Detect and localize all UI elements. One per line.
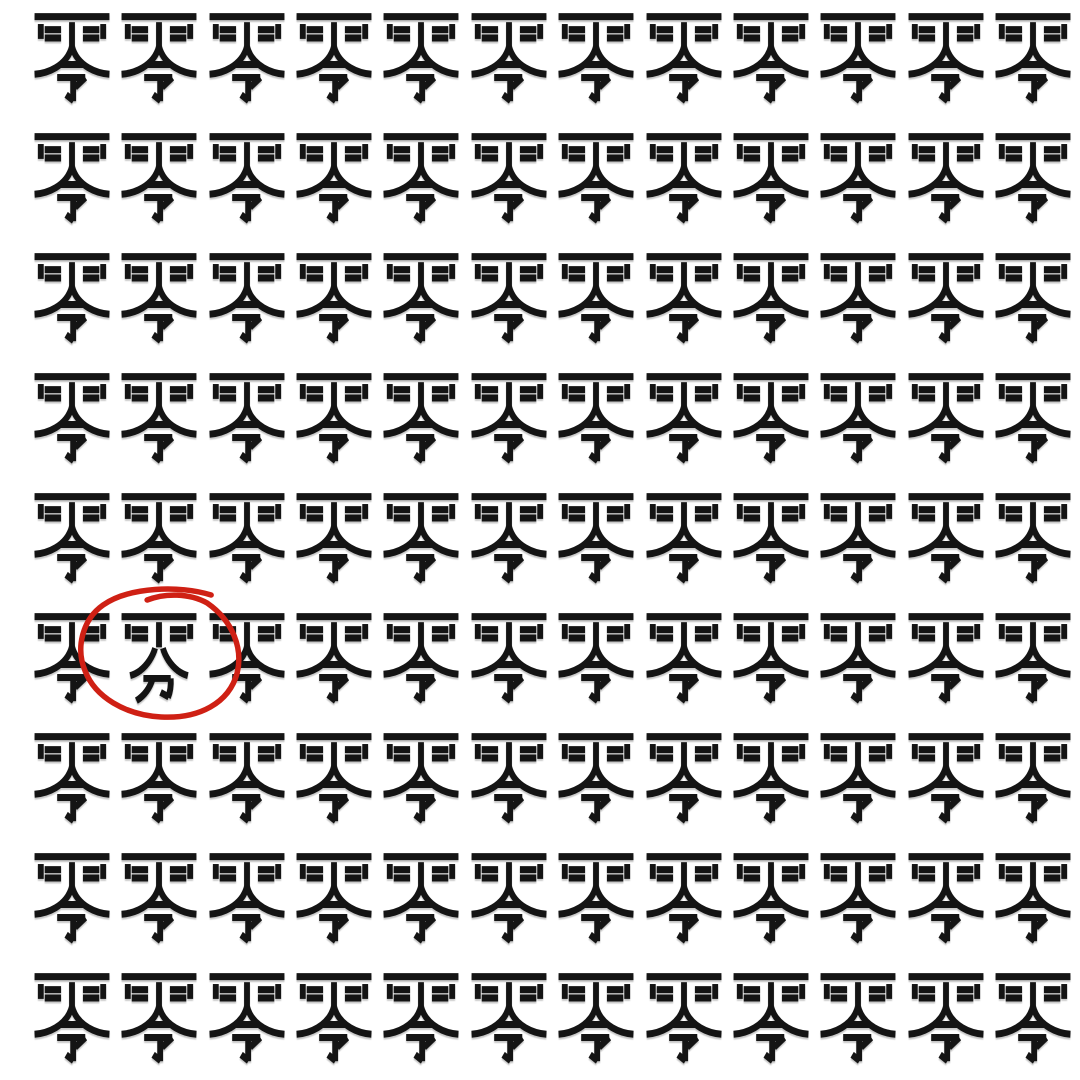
character-cell[interactable] bbox=[902, 0, 989, 117]
char-glyph bbox=[645, 851, 723, 944]
character-cell[interactable] bbox=[28, 357, 115, 477]
character-cell[interactable] bbox=[203, 237, 290, 357]
character-cell[interactable] bbox=[552, 957, 639, 1077]
char-glyph bbox=[645, 371, 723, 464]
character-cell[interactable] bbox=[902, 597, 989, 717]
character-cell[interactable] bbox=[552, 477, 639, 597]
character-cell[interactable] bbox=[290, 957, 377, 1077]
character-cell[interactable] bbox=[902, 957, 989, 1077]
char-glyph bbox=[33, 491, 111, 584]
char-glyph bbox=[382, 851, 460, 944]
char-glyph bbox=[819, 371, 897, 464]
character-cell[interactable] bbox=[290, 717, 377, 837]
character-cell[interactable] bbox=[552, 357, 639, 477]
char-glyph bbox=[645, 491, 723, 584]
character-cell[interactable] bbox=[28, 957, 115, 1077]
char-glyph bbox=[208, 971, 286, 1064]
char-glyph bbox=[295, 11, 373, 104]
character-cell[interactable] bbox=[378, 0, 465, 117]
char-glyph bbox=[732, 131, 810, 224]
character-cell[interactable] bbox=[378, 597, 465, 717]
character-cell[interactable] bbox=[28, 477, 115, 597]
char-glyph bbox=[819, 971, 897, 1064]
character-cell[interactable] bbox=[465, 717, 552, 837]
char-glyph bbox=[994, 251, 1072, 344]
char-glyph bbox=[994, 611, 1072, 704]
char-glyph bbox=[470, 11, 548, 104]
character-cell[interactable] bbox=[727, 477, 814, 597]
character-cell[interactable] bbox=[815, 357, 902, 477]
char-glyph bbox=[907, 611, 985, 704]
char-glyph bbox=[645, 131, 723, 224]
char-glyph bbox=[470, 971, 548, 1064]
char-glyph bbox=[907, 371, 985, 464]
char-glyph bbox=[295, 851, 373, 944]
char-glyph bbox=[732, 851, 810, 944]
char-glyph bbox=[732, 491, 810, 584]
char-glyph bbox=[994, 11, 1072, 104]
character-cell[interactable] bbox=[815, 717, 902, 837]
char-glyph bbox=[732, 611, 810, 704]
char-glyph bbox=[732, 971, 810, 1064]
character-cell[interactable] bbox=[465, 957, 552, 1077]
character-cell[interactable] bbox=[552, 117, 639, 237]
char-glyph bbox=[470, 491, 548, 584]
char-glyph bbox=[295, 131, 373, 224]
char-glyph bbox=[33, 851, 111, 944]
character-cell[interactable] bbox=[115, 357, 202, 477]
char-glyph bbox=[120, 851, 198, 944]
character-cell[interactable] bbox=[465, 597, 552, 717]
char-glyph bbox=[470, 731, 548, 824]
character-cell[interactable] bbox=[378, 717, 465, 837]
odd-char-glyph bbox=[120, 611, 198, 704]
character-cell[interactable] bbox=[203, 597, 290, 717]
char-glyph bbox=[208, 731, 286, 824]
char-glyph bbox=[645, 731, 723, 824]
char-glyph bbox=[819, 731, 897, 824]
character-cell[interactable] bbox=[290, 477, 377, 597]
character-cell[interactable] bbox=[290, 0, 377, 117]
char-glyph bbox=[557, 851, 635, 944]
character-cell[interactable] bbox=[902, 477, 989, 597]
character-cell[interactable] bbox=[640, 237, 727, 357]
character-cell[interactable] bbox=[290, 237, 377, 357]
char-glyph bbox=[208, 371, 286, 464]
char-glyph bbox=[208, 11, 286, 104]
character-cell[interactable] bbox=[203, 477, 290, 597]
character-cell[interactable] bbox=[552, 237, 639, 357]
character-cell[interactable] bbox=[465, 0, 552, 117]
char-glyph bbox=[120, 491, 198, 584]
character-cell[interactable] bbox=[990, 597, 1077, 717]
char-glyph bbox=[645, 971, 723, 1064]
character-cell[interactable] bbox=[465, 477, 552, 597]
char-glyph bbox=[33, 731, 111, 824]
char-glyph bbox=[819, 11, 897, 104]
char-glyph bbox=[382, 131, 460, 224]
character-cell[interactable] bbox=[115, 237, 202, 357]
character-cell[interactable] bbox=[902, 717, 989, 837]
char-glyph bbox=[295, 731, 373, 824]
char-glyph bbox=[994, 371, 1072, 464]
character-grid bbox=[28, 0, 1077, 1077]
character-cell[interactable] bbox=[640, 0, 727, 117]
char-glyph bbox=[295, 251, 373, 344]
character-cell[interactable] bbox=[990, 837, 1077, 957]
character-cell[interactable] bbox=[290, 597, 377, 717]
char-glyph bbox=[208, 131, 286, 224]
char-glyph bbox=[994, 971, 1072, 1064]
puzzle-canvas bbox=[0, 0, 1080, 1080]
char-glyph bbox=[470, 611, 548, 704]
char-glyph bbox=[732, 371, 810, 464]
char-glyph bbox=[120, 971, 198, 1064]
char-glyph bbox=[33, 251, 111, 344]
char-glyph bbox=[732, 251, 810, 344]
char-glyph bbox=[907, 491, 985, 584]
character-cell[interactable] bbox=[640, 837, 727, 957]
character-cell[interactable] bbox=[290, 357, 377, 477]
char-glyph bbox=[470, 131, 548, 224]
char-glyph bbox=[470, 371, 548, 464]
char-glyph bbox=[470, 851, 548, 944]
character-cell[interactable] bbox=[815, 0, 902, 117]
char-glyph bbox=[819, 251, 897, 344]
char-glyph bbox=[557, 971, 635, 1064]
char-glyph bbox=[557, 11, 635, 104]
character-cell[interactable] bbox=[815, 597, 902, 717]
character-cell[interactable] bbox=[640, 357, 727, 477]
char-glyph bbox=[208, 251, 286, 344]
character-cell[interactable] bbox=[990, 717, 1077, 837]
character-cell[interactable] bbox=[378, 357, 465, 477]
character-cell[interactable] bbox=[902, 837, 989, 957]
character-cell[interactable] bbox=[203, 117, 290, 237]
character-cell[interactable] bbox=[990, 477, 1077, 597]
char-glyph bbox=[907, 11, 985, 104]
character-cell[interactable] bbox=[727, 597, 814, 717]
char-glyph bbox=[382, 731, 460, 824]
char-glyph bbox=[382, 971, 460, 1064]
character-cell[interactable] bbox=[290, 837, 377, 957]
char-glyph bbox=[33, 11, 111, 104]
character-cell[interactable] bbox=[203, 837, 290, 957]
char-glyph bbox=[382, 11, 460, 104]
character-cell[interactable] bbox=[203, 717, 290, 837]
character-cell[interactable] bbox=[990, 357, 1077, 477]
character-cell[interactable] bbox=[552, 0, 639, 117]
character-cell[interactable] bbox=[115, 477, 202, 597]
char-glyph bbox=[382, 371, 460, 464]
char-glyph bbox=[382, 251, 460, 344]
character-cell[interactable] bbox=[815, 837, 902, 957]
char-glyph bbox=[819, 611, 897, 704]
character-cell[interactable] bbox=[378, 117, 465, 237]
character-cell[interactable] bbox=[115, 717, 202, 837]
character-cell[interactable] bbox=[465, 837, 552, 957]
character-cell[interactable] bbox=[465, 117, 552, 237]
character-cell[interactable] bbox=[465, 237, 552, 357]
odd-character-cell[interactable] bbox=[115, 597, 202, 717]
character-cell[interactable] bbox=[640, 717, 727, 837]
character-cell[interactable] bbox=[727, 837, 814, 957]
character-cell[interactable] bbox=[28, 0, 115, 117]
character-cell[interactable] bbox=[203, 357, 290, 477]
char-glyph bbox=[994, 731, 1072, 824]
character-cell[interactable] bbox=[902, 357, 989, 477]
char-glyph bbox=[645, 251, 723, 344]
char-glyph bbox=[33, 131, 111, 224]
char-glyph bbox=[994, 851, 1072, 944]
char-glyph bbox=[208, 491, 286, 584]
character-cell[interactable] bbox=[727, 357, 814, 477]
character-cell[interactable] bbox=[727, 0, 814, 117]
char-glyph bbox=[645, 611, 723, 704]
char-glyph bbox=[907, 251, 985, 344]
char-glyph bbox=[557, 731, 635, 824]
char-glyph bbox=[907, 131, 985, 224]
char-glyph bbox=[732, 11, 810, 104]
character-cell[interactable] bbox=[727, 957, 814, 1077]
character-cell[interactable] bbox=[378, 237, 465, 357]
char-glyph bbox=[120, 371, 198, 464]
character-cell[interactable] bbox=[552, 837, 639, 957]
char-glyph bbox=[470, 251, 548, 344]
character-cell[interactable] bbox=[378, 957, 465, 1077]
char-glyph bbox=[120, 11, 198, 104]
character-cell[interactable] bbox=[640, 477, 727, 597]
char-glyph bbox=[819, 491, 897, 584]
char-glyph bbox=[907, 731, 985, 824]
character-cell[interactable] bbox=[990, 957, 1077, 1077]
char-glyph bbox=[819, 851, 897, 944]
char-glyph bbox=[994, 491, 1072, 584]
character-cell[interactable] bbox=[990, 117, 1077, 237]
char-glyph bbox=[819, 131, 897, 224]
char-glyph bbox=[557, 131, 635, 224]
character-cell[interactable] bbox=[115, 957, 202, 1077]
character-cell[interactable] bbox=[640, 957, 727, 1077]
character-cell[interactable] bbox=[203, 0, 290, 117]
char-glyph bbox=[994, 131, 1072, 224]
character-cell[interactable] bbox=[115, 837, 202, 957]
character-cell[interactable] bbox=[902, 237, 989, 357]
character-cell[interactable] bbox=[815, 117, 902, 237]
char-glyph bbox=[557, 611, 635, 704]
character-cell[interactable] bbox=[115, 117, 202, 237]
character-cell[interactable] bbox=[990, 0, 1077, 117]
char-glyph bbox=[33, 971, 111, 1064]
char-glyph bbox=[295, 611, 373, 704]
character-cell[interactable] bbox=[640, 597, 727, 717]
character-cell[interactable] bbox=[378, 477, 465, 597]
char-glyph bbox=[295, 971, 373, 1064]
character-cell[interactable] bbox=[815, 477, 902, 597]
character-cell[interactable] bbox=[28, 837, 115, 957]
char-glyph bbox=[907, 851, 985, 944]
char-glyph bbox=[120, 131, 198, 224]
char-glyph bbox=[33, 611, 111, 704]
character-cell[interactable] bbox=[640, 117, 727, 237]
character-cell[interactable] bbox=[115, 0, 202, 117]
character-cell[interactable] bbox=[28, 237, 115, 357]
char-glyph bbox=[382, 491, 460, 584]
char-glyph bbox=[295, 491, 373, 584]
char-glyph bbox=[557, 371, 635, 464]
character-cell[interactable] bbox=[727, 117, 814, 237]
character-cell[interactable] bbox=[465, 357, 552, 477]
char-glyph bbox=[557, 491, 635, 584]
character-cell[interactable] bbox=[815, 957, 902, 1077]
char-glyph bbox=[120, 251, 198, 344]
char-glyph bbox=[382, 611, 460, 704]
character-cell[interactable] bbox=[28, 117, 115, 237]
character-cell[interactable] bbox=[290, 117, 377, 237]
character-cell[interactable] bbox=[902, 117, 989, 237]
char-glyph bbox=[645, 11, 723, 104]
char-glyph bbox=[557, 251, 635, 344]
character-cell[interactable] bbox=[815, 237, 902, 357]
char-glyph bbox=[907, 971, 985, 1064]
character-cell[interactable] bbox=[28, 597, 115, 717]
char-glyph bbox=[295, 371, 373, 464]
char-glyph bbox=[33, 371, 111, 464]
char-glyph bbox=[208, 611, 286, 704]
character-cell[interactable] bbox=[378, 837, 465, 957]
char-glyph bbox=[208, 851, 286, 944]
character-cell[interactable] bbox=[552, 597, 639, 717]
character-cell[interactable] bbox=[727, 237, 814, 357]
character-cell[interactable] bbox=[203, 957, 290, 1077]
character-cell[interactable] bbox=[990, 237, 1077, 357]
character-cell[interactable] bbox=[28, 717, 115, 837]
char-glyph bbox=[732, 731, 810, 824]
character-cell[interactable] bbox=[552, 717, 639, 837]
char-glyph bbox=[120, 731, 198, 824]
character-cell[interactable] bbox=[727, 717, 814, 837]
